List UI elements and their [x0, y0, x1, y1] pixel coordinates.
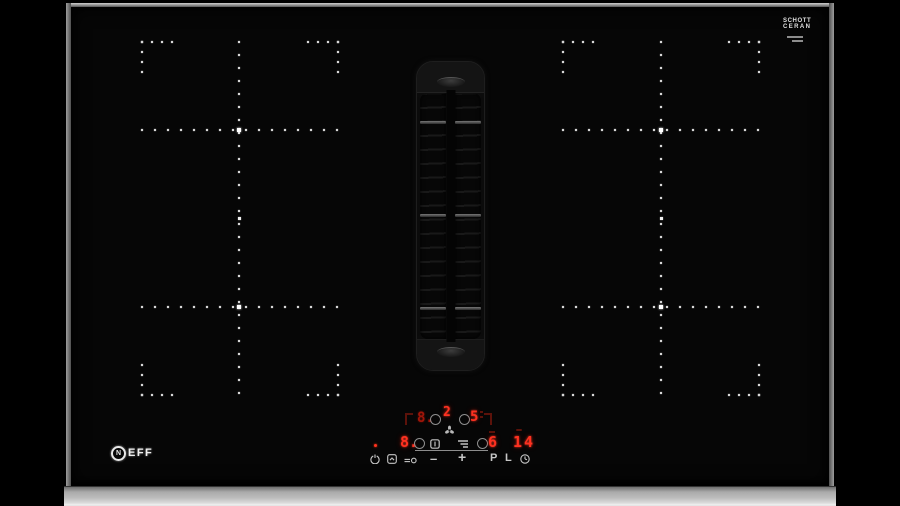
vent-divider [455, 121, 481, 124]
vent-divider [420, 214, 446, 217]
zone-display-back-right: 5 [470, 409, 478, 425]
zone-bracket-left [405, 413, 413, 425]
zone-select-ring-front-right[interactable] [477, 438, 488, 449]
vent-divider [420, 307, 446, 310]
neff-logo: N EFF [111, 445, 153, 461]
timer-display: 14 [513, 433, 535, 451]
glass-logo-microtext [787, 36, 803, 38]
hob-front-rail [64, 486, 836, 506]
hob-right-edge [829, 3, 834, 486]
vent-center-channel [446, 90, 455, 342]
power-button[interactable] [370, 454, 380, 464]
vent-grid-icon [430, 439, 440, 449]
zone-select-ring-back-right[interactable] [459, 414, 470, 425]
vent-handle-top[interactable] [437, 77, 465, 87]
minus-button[interactable]: – [430, 451, 437, 466]
fan-level-display: 2 [443, 405, 451, 420]
neff-brand-text: EFF [128, 447, 153, 459]
fan-icon [443, 425, 456, 436]
wipe-protection-button[interactable] [387, 454, 397, 464]
connect-button[interactable] [404, 457, 417, 464]
residual-heat-dot [374, 444, 377, 447]
zone-bracket-right [484, 413, 492, 425]
childlock-button[interactable]: L [505, 452, 512, 464]
airflow-icon [457, 439, 469, 449]
vent-handle-bottom[interactable] [437, 347, 465, 357]
timer-button[interactable] [520, 454, 530, 464]
panel-separator-line [415, 450, 488, 451]
vent-divider [420, 121, 446, 124]
timer-tick [480, 411, 483, 413]
vent-divider [455, 307, 481, 310]
zone-select-ring-front-left[interactable] [414, 438, 425, 449]
plus-button[interactable]: + [458, 449, 466, 465]
glass-logo-microtext [792, 40, 803, 42]
zone-display-front-right: 6 [488, 433, 497, 451]
schott-ceran-logo: SCHOTT CERAN [783, 18, 817, 42]
zone-select-ring-back-left[interactable] [430, 414, 441, 425]
timer-tick [480, 416, 483, 418]
neff-emblem-icon: N [111, 446, 126, 461]
product-photo: SCHOTT CERAN N EFF 8. 2 5 [0, 0, 900, 506]
vent-module [416, 61, 485, 371]
timer-active-tick [516, 429, 522, 431]
schott-ceran-line2: CERAN [783, 24, 817, 31]
power-boost-button[interactable]: P [490, 452, 497, 464]
vent-divider [455, 214, 481, 217]
